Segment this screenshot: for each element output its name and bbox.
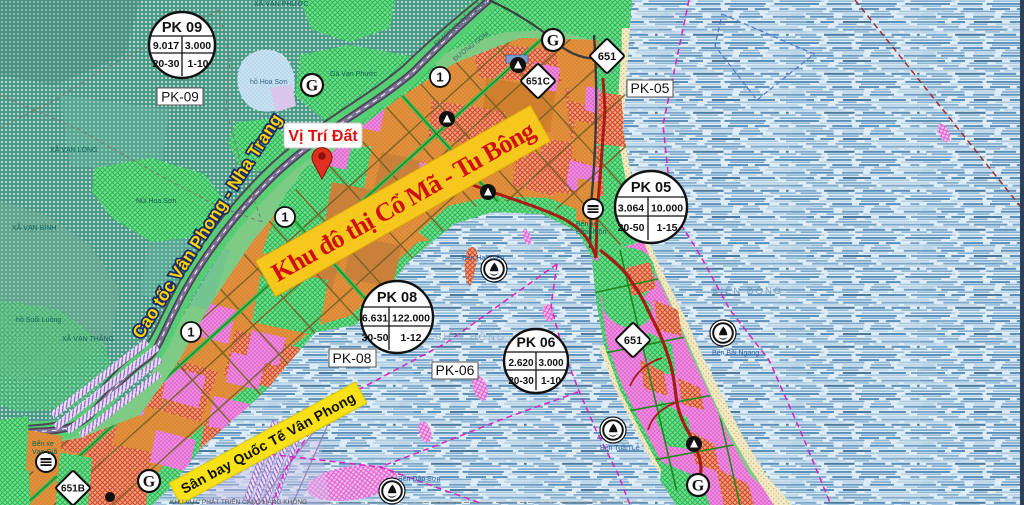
- svg-text:Bến xe: Bến xe: [576, 219, 598, 228]
- svg-text:hồ Suối Luồng: hồ Suối Luồng: [16, 315, 61, 324]
- svg-text:651: 651: [598, 51, 616, 63]
- svg-text:G: G: [306, 78, 319, 95]
- svg-text:9.017: 9.017: [153, 40, 179, 52]
- svg-text:1-10: 1-10: [541, 376, 561, 387]
- svg-text:651B: 651B: [61, 484, 85, 495]
- svg-text:20-30: 20-30: [508, 376, 534, 387]
- svg-text:Vị Trí Đất: Vị Trí Đất: [288, 128, 358, 145]
- svg-text:2.620: 2.620: [508, 358, 533, 369]
- svg-text:1-12: 1-12: [400, 332, 421, 344]
- svg-text:KHU VỰC PHÁT TRIỂN CẢNG HÀNG K: KHU VỰC PHÁT TRIỂN CẢNG HÀNG KHÔNG: [170, 497, 307, 505]
- svg-text:PK-05: PK-05: [631, 80, 670, 96]
- svg-text:Núi Hoa Sơn: Núi Hoa Sơn: [136, 198, 176, 205]
- svg-text:XÃ VẠN BÌNH: XÃ VẠN BÌNH: [12, 223, 56, 232]
- svg-text:Đầm Môn: Đầm Môn: [576, 227, 606, 236]
- svg-text:PK-08: PK-08: [333, 350, 372, 366]
- svg-text:Gà Vạn Phước: Gà Vạn Phước: [330, 71, 378, 78]
- svg-text:PK 06: PK 06: [517, 334, 556, 350]
- svg-text:PK 09: PK 09: [162, 20, 202, 36]
- svg-text:XÃ VẠN PHƯỚC: XÃ VẠN PHƯỚC: [254, 0, 308, 8]
- svg-text:Vạn Giã: Vạn Giã: [32, 449, 57, 456]
- svg-text:XÃ VẠN LONG: XÃ VẠN LONG: [50, 145, 97, 154]
- svg-text:Bến Đập Sơn: Bến Đập Sơn: [398, 474, 440, 483]
- svg-text:20-30: 20-30: [153, 58, 180, 70]
- svg-text:hồ Hoa Sơn: hồ Hoa Sơn: [250, 77, 288, 86]
- svg-text:Bến Tuần Lễ: Bến Tuần Lễ: [600, 443, 640, 452]
- svg-text:PK-09: PK-09: [161, 90, 199, 105]
- svg-text:1: 1: [436, 70, 443, 85]
- svg-text:6.631: 6.631: [362, 313, 388, 325]
- svg-text:G: G: [547, 33, 560, 50]
- svg-text:PK 08: PK 08: [377, 290, 417, 306]
- svg-text:1-15: 1-15: [656, 222, 677, 234]
- svg-text:PK-06: PK-06: [436, 362, 475, 378]
- svg-text:3.000: 3.000: [185, 40, 211, 52]
- svg-text:PK 05: PK 05: [631, 180, 671, 196]
- svg-text:Bến xe: Bến xe: [32, 439, 54, 448]
- svg-text:1-10: 1-10: [187, 58, 208, 70]
- svg-text:651: 651: [624, 335, 642, 347]
- svg-text:XÃ VẠN THẮNG: XÃ VẠN THẮNG: [62, 334, 114, 343]
- svg-text:Bến Bãi Ngang: Bến Bãi Ngang: [712, 348, 759, 357]
- svg-text:651C: 651C: [526, 77, 550, 88]
- svg-text:10.000: 10.000: [651, 203, 683, 215]
- svg-text:30-50: 30-50: [362, 332, 389, 344]
- svg-text:1: 1: [281, 210, 288, 225]
- svg-text:G: G: [692, 478, 705, 495]
- svg-text:BIỂN ĐÔNG: BIỂN ĐÔNG: [712, 285, 783, 297]
- svg-text:3.064: 3.064: [618, 203, 644, 215]
- svg-text:122.000: 122.000: [392, 313, 430, 325]
- svg-text:20-50: 20-50: [618, 222, 645, 234]
- svg-text:BIỂN ĐÔNG: BIỂN ĐÔNG: [435, 331, 506, 343]
- svg-text:3.000: 3.000: [538, 358, 563, 369]
- svg-text:Bến Hai Triều: Bến Hai Triều: [462, 253, 505, 262]
- svg-text:1: 1: [187, 325, 194, 340]
- svg-text:G: G: [143, 474, 156, 491]
